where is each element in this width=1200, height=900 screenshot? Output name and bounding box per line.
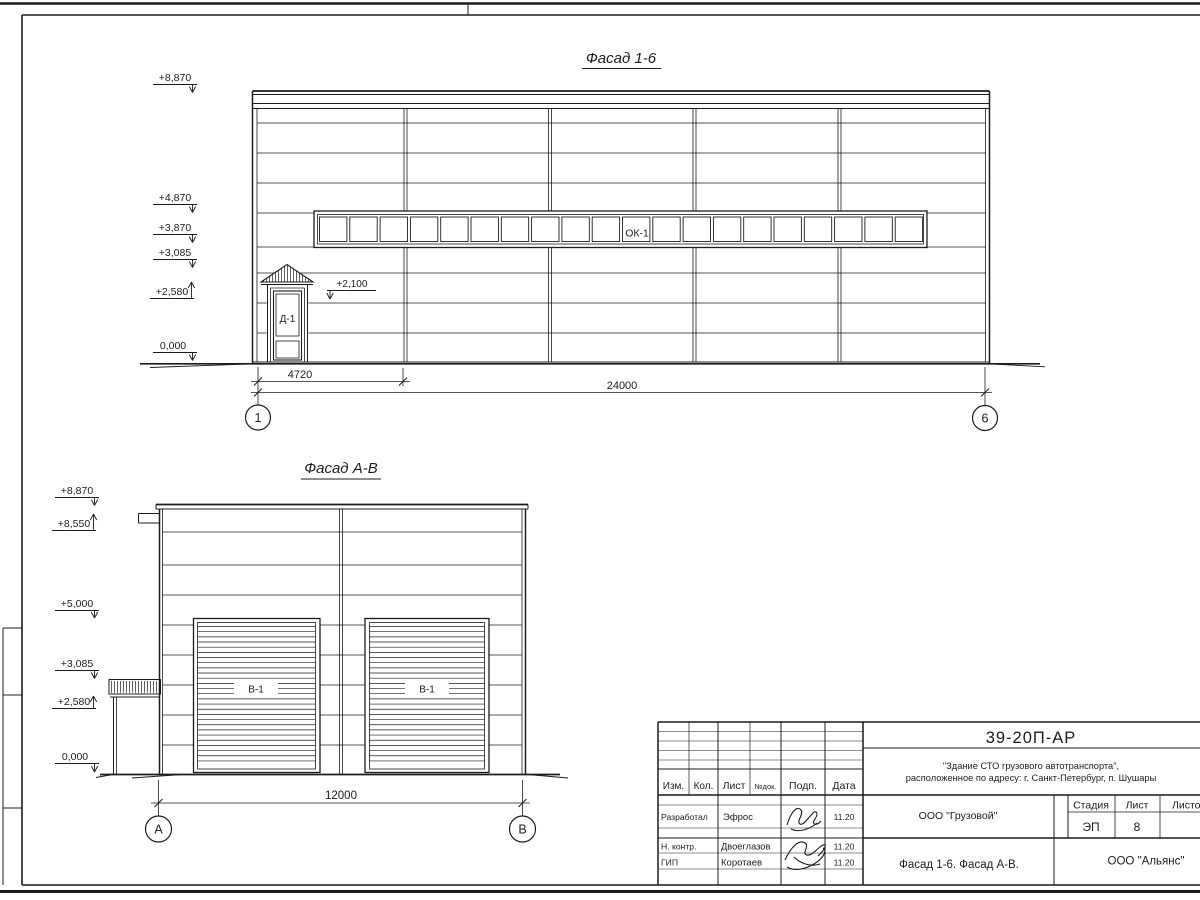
svg-text:+4,870: +4,870 [159,192,192,204]
svg-text:Дата: Дата [832,780,855,792]
gate-mark-label: В-1 [419,685,435,696]
wall-mullion [340,509,343,774]
axis-label-6: 6 [982,412,989,426]
elevation-marks-a-b: +8,870 +8,550 +5,000 +3,085 +2,580 0,000 [52,485,99,772]
stage-label: Стадия [1073,800,1109,812]
svg-text:+8,870: +8,870 [159,72,192,84]
svg-text:+3,870: +3,870 [159,222,192,234]
axis-label-a: А [154,823,163,837]
svg-text:Подп.: Подп. [789,780,817,792]
sheet-label: Лист [1126,800,1149,812]
title-block: 39-20П-АР "Здание СТО грузового автотран… [658,722,1200,885]
svg-text:+8,550: +8,550 [58,518,91,530]
svg-text:+3,085: +3,085 [159,247,192,259]
ribbon-window-ok1: ОК-1 [314,211,927,248]
drawing-title: Фасад 1-6. Фасад А-В. [899,859,1019,871]
axis-label-b: В [518,823,526,837]
staff-rows: Разработал Эфрос 11.20 Н. контр. Двоегла… [661,808,855,869]
project-name-line2: расположенное по адресу: г. Санкт-Петерб… [906,773,1157,783]
door-mark-label: Д-1 [280,314,296,325]
left-margin-boxes [3,628,22,885]
annex-porch [109,680,161,775]
document-number: 39-20П-АР [986,729,1077,747]
chimney [139,514,160,524]
sheets-label: Листов [1172,800,1200,812]
gate-right: В-1 [365,619,489,773]
svg-text:+3,085: +3,085 [61,658,94,670]
svg-text:Лист: Лист [723,780,746,792]
svg-text:+5,000: +5,000 [61,598,94,610]
ground-line-1-6 [140,364,1045,368]
gate-left: В-1 [194,619,321,773]
project-name-line1: "Здание СТО грузового автотранспорта", [943,761,1119,771]
svg-text:+2,580: +2,580 [58,696,91,708]
drawing-sheet: Фасад 1-6 ОК-1 Д-1 [0,0,1200,900]
window-mark-label: ОК-1 [625,228,649,240]
staff-role: Н. контр. [661,842,696,852]
dimensions-1-6: 4720 24000 1 6 [246,367,998,431]
svg-text:0,000: 0,000 [160,340,186,352]
facade-a-b: Фасад А-В В-1 В-1 [52,460,568,842]
elevation-marks-1-6: +8,870 +4,870 +3,870 +3,085 +2,580 0,000 [150,72,197,361]
staff-name: Эфрос [723,812,753,823]
dim-24000: 24000 [607,380,638,392]
facade-1-6: Фасад 1-6 ОК-1 Д-1 [140,50,1045,431]
staff-date: 11.20 [834,842,855,852]
client-name: ООО "Грузовой" [919,810,998,822]
stage-value: ЭП [1082,820,1099,834]
facade-a-b-title: Фасад А-В [304,460,378,477]
entrance-door: Д-1 +2,100 [261,265,376,363]
svg-text:0,000: 0,000 [62,751,88,763]
dimensions-a-b: 12000 А В [146,780,536,842]
staff-role: Разработал [661,812,708,822]
staff-name: Коротаев [721,858,762,869]
sheet-frame [0,4,1200,892]
axis-label-1: 1 [255,411,262,425]
svg-text:+8,870: +8,870 [61,485,94,497]
elevation-mark-2100: +2,100 [327,279,376,299]
svg-text:№док.: №док. [755,782,777,791]
signature-2 [785,842,825,870]
facade-1-6-title: Фасад 1-6 [586,50,657,67]
dim-4720: 4720 [288,369,312,381]
staff-name: Двоеглазов [721,842,770,852]
company-name: ООО "Альянс" [1108,856,1185,868]
svg-text:+2,580: +2,580 [156,286,189,298]
svg-text:+2,100: +2,100 [337,279,368,290]
gate-mark-label: В-1 [248,685,264,696]
revision-header: Изм. Кол. Лист №док. Подп. Дата [663,780,856,792]
staff-date: 11.20 [834,858,855,868]
ground-line-a-b [96,775,568,779]
svg-text:Кол.: Кол. [694,781,714,792]
dim-12000: 12000 [325,790,357,802]
signature-1 [787,808,821,830]
staff-date: 11.20 [834,812,855,822]
staff-role: ГИП [661,858,678,868]
svg-text:Изм.: Изм. [663,781,684,792]
sheet-value: 8 [1134,820,1141,834]
